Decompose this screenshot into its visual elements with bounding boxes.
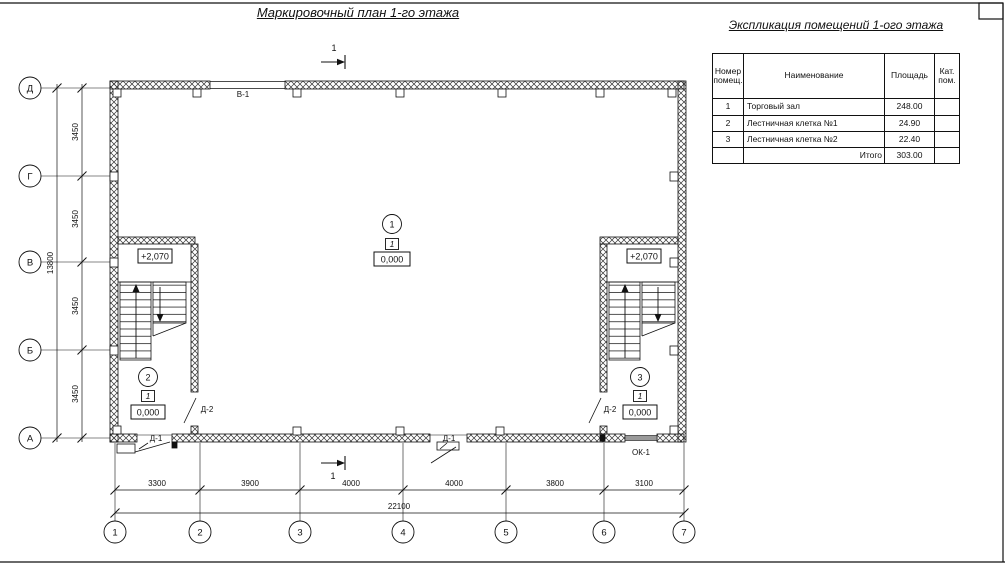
axis-number: 4: [400, 528, 405, 539]
cell-room-name: Торговый зал: [744, 99, 885, 116]
door-d2-label: Д-2: [201, 405, 214, 414]
axis-number: 2: [197, 528, 202, 539]
stair2-partition: [600, 244, 607, 392]
col-header-name: Наименование: [744, 54, 885, 99]
cell-total-empty: [713, 148, 744, 163]
room-number: 2: [145, 373, 150, 383]
door-d1-right: [431, 442, 459, 463]
axis-letter: Б: [27, 346, 33, 357]
window-v1: [210, 82, 285, 89]
cell-room-name: Лестничная клетка №1: [744, 116, 885, 132]
wall-right: [678, 81, 686, 442]
wall-top-left: [110, 81, 210, 89]
col-header-category: Кат. пом.: [935, 54, 959, 99]
dim-total-label: 13800: [46, 251, 55, 274]
dim-label: 3900: [241, 479, 259, 488]
cell-room-number: 2: [713, 116, 744, 132]
cell-total-label: Итого: [744, 148, 885, 163]
bottom-dimension-labels: 3300 3900 4000 4000 3800 3100 22100: [148, 479, 653, 511]
section-number: 1: [330, 471, 335, 481]
left-dimension-labels: 3450 3450 3450 3450 13800: [46, 123, 80, 403]
door-post: [172, 442, 177, 448]
room-label-3: 3 1 0,000: [623, 368, 657, 420]
door-d1-left: [117, 442, 170, 453]
room-number: 3: [637, 373, 642, 383]
section-number: 1: [331, 43, 336, 53]
stair2-top-wall: [600, 237, 678, 244]
stair1-partition: [191, 244, 198, 392]
level-upper-left: +2,070: [141, 252, 169, 262]
door-d1-label: Д-1: [443, 434, 456, 443]
axis-number: 6: [601, 528, 606, 539]
stairs-right: [607, 282, 678, 360]
room-level: 0,000: [381, 255, 404, 265]
cell-total-category: [935, 148, 959, 163]
axis-letter: В: [27, 258, 33, 269]
dim-label: 3100: [635, 479, 653, 488]
door-d2-right-swing: [589, 398, 601, 423]
room-category: 1: [638, 391, 643, 401]
wall-bottom-1: [110, 434, 137, 442]
stairs-left: [118, 282, 191, 360]
stair1-partition-stub: [191, 426, 198, 434]
explication-table: Номер помещ. Наименование Площадь Кат. п…: [712, 53, 960, 164]
door-d1-label: Д-1: [150, 434, 163, 443]
axis-number: 3: [297, 528, 302, 539]
cell-room-area: 24.90: [885, 116, 935, 132]
cell-room-number: 1: [713, 99, 744, 116]
dim-label: 3450: [71, 123, 80, 141]
cell-total-area: 303.00: [885, 148, 935, 163]
col-header-area: Площадь: [885, 54, 935, 99]
section-mark-top: 1: [321, 43, 345, 69]
level-upper-right: +2,070: [630, 252, 658, 262]
drawing-sheet: Д Г В Б А 3450 3450 3450 3450 13800: [0, 0, 1005, 565]
axis-letter: Г: [27, 172, 32, 183]
axis-number: 1: [112, 528, 117, 539]
doors: [117, 398, 601, 463]
room-category: 1: [390, 239, 395, 249]
dim-label: 3300: [148, 479, 166, 488]
dim-label: 3450: [71, 210, 80, 228]
room-label-2: 2 1 0,000: [131, 368, 165, 420]
door-post: [600, 435, 605, 441]
section-mark-bottom: 1: [321, 456, 345, 481]
col-header-number: Номер помещ.: [713, 54, 744, 99]
grid-axes-number-labels: 1 2 3 4 5 6 7: [112, 528, 686, 539]
cell-room-area: 248.00: [885, 99, 935, 116]
window-ok1: [625, 436, 657, 441]
dim-label: 3450: [71, 385, 80, 403]
cell-room-category: [935, 116, 959, 132]
room-category: 1: [146, 391, 151, 401]
wall-top-right: [285, 81, 684, 89]
axis-letter: Д: [27, 84, 34, 95]
cell-room-name: Лестничная клетка №2: [744, 132, 885, 148]
axis-letter: А: [27, 434, 34, 445]
cell-room-category: [935, 132, 959, 148]
cell-room-category: [935, 99, 959, 116]
left-dimension-lines: [53, 84, 87, 443]
stair1-top-wall: [118, 237, 195, 244]
grid-axes-letter-labels: Д Г В Б А: [27, 84, 34, 445]
plan-title: Маркировочный план 1-го этажа: [228, 5, 488, 20]
section-arrow: [337, 460, 345, 466]
door-d2-label: Д-2: [604, 405, 617, 414]
stair2-partition-stub: [600, 426, 607, 434]
section-arrow: [337, 59, 345, 65]
room-level: 0,000: [629, 408, 652, 418]
dim-label: 3450: [71, 297, 80, 315]
room-number: 1: [389, 220, 394, 230]
explication-title: Экспликация помещений 1-ого этажа: [703, 18, 969, 32]
dim-label: 4000: [445, 479, 463, 488]
room-label-1: 1 1 0,000: [374, 215, 410, 267]
window-ok1-label: ОК-1: [632, 448, 651, 457]
axis-number: 5: [503, 528, 508, 539]
frame-corner-box: [979, 3, 1003, 19]
dim-label: 3800: [546, 479, 564, 488]
wall-bottom-4: [657, 434, 684, 442]
room-level: 0,000: [137, 408, 160, 418]
door-d2-left-swing: [184, 398, 196, 423]
dim-total-label: 22100: [388, 502, 411, 511]
axis-number: 7: [681, 528, 686, 539]
cell-room-number: 3: [713, 132, 744, 148]
cell-room-area: 22.40: [885, 132, 935, 148]
window-v1-label: В-1: [237, 90, 250, 99]
dim-label: 4000: [342, 479, 360, 488]
opening-labels: В-1 ОК-1 Д-1 Д-1 Д-2 Д-2: [150, 90, 651, 457]
